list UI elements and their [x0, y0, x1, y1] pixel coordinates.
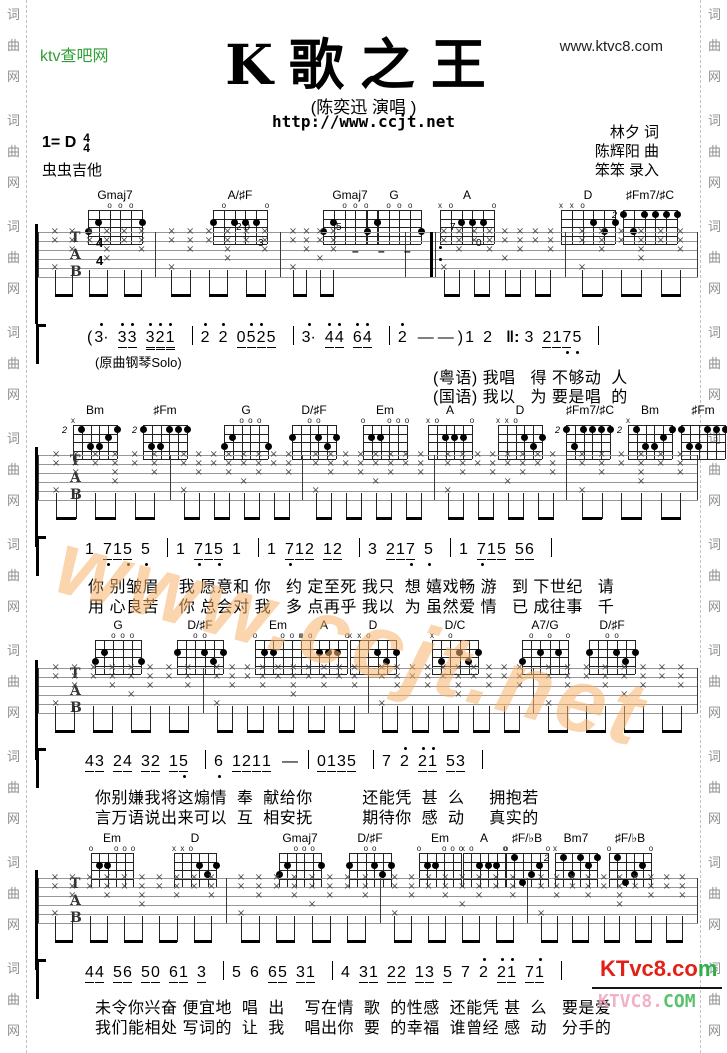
finger-dot	[334, 649, 341, 656]
strum-x-mark: ×	[190, 882, 198, 892]
jianpu-note: 3	[95, 752, 104, 772]
note-beam	[376, 517, 392, 520]
strum-x-mark: ×	[470, 236, 478, 246]
finger-dot	[456, 649, 463, 656]
muted-string-mark: x	[551, 844, 559, 853]
open-string-mark: o	[314, 416, 322, 425]
jianpu-note: 5	[141, 963, 150, 983]
barline	[226, 878, 227, 923]
jianpu-note: 1	[487, 540, 496, 560]
strum-x-mark: ×	[316, 254, 324, 264]
open-string-mark: o	[603, 631, 611, 640]
notation-bracket	[36, 324, 39, 364]
strum-x-mark: ×	[343, 882, 351, 892]
tab-staff: TAB×××××××××××××××××××××××××××××××××××××…	[38, 668, 698, 714]
fret-position-label: 2	[62, 425, 67, 435]
note-stem	[217, 706, 218, 732]
open-string-mark: o	[251, 631, 259, 640]
fret-position-label: 2	[132, 425, 137, 435]
finger-dot	[586, 649, 593, 656]
strum-x-mark: ×	[85, 236, 93, 246]
muted-string-mark: x	[170, 844, 178, 853]
strum-x-mark: ×	[584, 891, 592, 901]
jianpu-note: 7	[285, 540, 294, 560]
finger-dot	[632, 649, 639, 656]
fret-line	[349, 862, 391, 863]
note-stem	[538, 493, 539, 519]
note-stem	[265, 270, 266, 296]
rail-char-right: 网	[708, 490, 721, 509]
octave-dot-above	[356, 323, 359, 326]
strum-x-mark: ×	[501, 236, 509, 246]
note-stem	[90, 916, 91, 942]
strum-x-mark: ×	[89, 672, 97, 682]
rail-char-right: 网	[708, 1020, 721, 1039]
note-stem	[523, 493, 524, 519]
note-beam	[55, 940, 73, 943]
barline	[368, 668, 369, 713]
tab-staff: TAB×××××××××××××××××××××××××××××××××××××…	[38, 878, 698, 924]
fret-position-label: 2	[617, 425, 622, 435]
chord-name: D/♯F	[292, 403, 336, 417]
strum-x-mark: ×	[316, 236, 324, 246]
muted-string-mark: x	[436, 201, 444, 210]
finger-dot	[289, 434, 296, 441]
rail-char-right: 词	[708, 852, 721, 871]
note-stem	[496, 916, 497, 942]
strum-x-mark: ×	[676, 245, 684, 255]
finger-dot	[590, 219, 597, 226]
note-stem	[666, 916, 667, 942]
notation-barline	[551, 538, 552, 557]
note-beam	[535, 294, 551, 297]
jianpu-note: 2	[483, 328, 492, 347]
octave-dot-above	[422, 747, 425, 750]
note-beam	[621, 294, 642, 297]
notation-symbol: )	[458, 329, 463, 347]
fret-line	[428, 442, 472, 443]
fret-line	[628, 451, 672, 452]
repeat-bar-thick	[430, 232, 433, 277]
octave-dot-above	[404, 747, 407, 750]
jianpu-note: 1	[166, 328, 175, 348]
jianpu-note: 4	[335, 328, 344, 348]
note-stem	[244, 493, 245, 519]
finger-dot	[652, 211, 659, 218]
rail-char-left: 词	[7, 216, 20, 235]
open-string-mark: o	[385, 416, 393, 425]
fret-line	[177, 649, 223, 650]
muted-string-mark: x	[494, 416, 502, 425]
strum-x-mark: ×	[390, 882, 398, 892]
note-beam	[55, 730, 75, 733]
strum-x-mark: ×	[361, 891, 369, 901]
note-stem	[131, 706, 132, 732]
octave-dot-below	[410, 563, 413, 566]
finger-dot	[166, 426, 173, 433]
finger-dot	[175, 426, 182, 433]
strum-x-mark: ×	[155, 882, 163, 892]
fret-line	[88, 210, 142, 211]
finger-dot	[374, 649, 381, 656]
strum-x-mark: ×	[424, 681, 432, 691]
octave-dot-above	[260, 323, 263, 326]
muted-string-mark: x	[69, 416, 77, 425]
fret-line	[279, 870, 321, 871]
finger-dot	[213, 862, 220, 869]
notation-line: 4324321561211—0135722153	[85, 750, 491, 772]
fret-line	[506, 870, 548, 871]
chord-name: A	[428, 403, 472, 417]
jianpu-note: 6	[250, 963, 259, 982]
finger-dot	[261, 649, 268, 656]
open-string-mark: o	[246, 416, 254, 425]
barline	[527, 878, 528, 923]
note-stem	[572, 916, 573, 942]
jianpu-note: 2	[201, 328, 210, 347]
note-stem	[428, 916, 429, 942]
note-stem	[443, 706, 444, 732]
note-stem	[391, 493, 392, 519]
rail-char-right: 网	[708, 172, 721, 191]
finger-dot	[388, 862, 395, 869]
repeat-bar-thin	[435, 232, 436, 277]
strum-x-mark: ×	[91, 459, 99, 469]
jianpu-note: 2	[479, 963, 488, 982]
strum-x-mark: ×	[342, 459, 350, 469]
dash-note: —	[438, 329, 454, 347]
note-stem	[331, 493, 332, 519]
finger-dot	[607, 426, 614, 433]
open-string-mark: o	[579, 201, 587, 210]
jianpu-note: 5	[141, 540, 150, 559]
chord-name: A	[440, 188, 494, 202]
note-beam	[135, 517, 156, 520]
octave-dot-above	[483, 958, 486, 961]
muted-string-mark: x	[503, 416, 511, 425]
note-beam	[406, 517, 422, 520]
note-stem	[553, 493, 554, 519]
fret-line	[143, 434, 187, 435]
jianpu-note: 7	[525, 963, 534, 983]
credit-line: 陈辉阳 曲	[595, 142, 659, 161]
open-string-mark: o	[647, 844, 655, 853]
note-stem	[320, 270, 321, 296]
note-beam	[320, 294, 335, 297]
note-stem	[112, 706, 113, 732]
open-string-mark: o	[121, 844, 129, 853]
open-string-mark: o	[306, 631, 314, 640]
chord-name: ♯Fm7/♯C	[623, 188, 677, 202]
fret-line	[589, 666, 635, 667]
octave-dot-above	[308, 323, 311, 326]
open-string-mark: o	[446, 631, 454, 640]
strum-x-mark: ×	[120, 882, 128, 892]
chord-name: Bm	[73, 403, 117, 417]
strum-x-mark: ×	[327, 468, 335, 478]
fret-line	[292, 425, 336, 426]
chord-name: Em	[255, 618, 301, 632]
strum-x-mark: ×	[290, 891, 298, 901]
notation-barline	[258, 538, 259, 557]
barline	[203, 668, 204, 713]
octave-dot-above	[501, 958, 504, 961]
open-string-mark: o	[87, 844, 95, 853]
fret-line	[91, 870, 133, 871]
tab-staff: TAB442 03570–––×××××××××××××××××××××××××…	[38, 232, 698, 278]
strum-x-mark: ×	[677, 681, 685, 691]
note-stem	[662, 706, 663, 732]
barline	[38, 232, 39, 277]
staff-line	[38, 268, 698, 269]
note-beam	[244, 517, 260, 520]
fret-line	[213, 210, 267, 211]
note-stem	[541, 916, 542, 942]
octave-dot-above	[432, 747, 435, 750]
jianpu-note: 0	[317, 752, 326, 772]
chord-name: ♯F/♭B	[609, 831, 651, 845]
fret-line	[349, 853, 391, 854]
note-stem	[55, 706, 56, 732]
strum-x-mark: ×	[516, 245, 524, 255]
notation-barline	[482, 750, 483, 769]
finger-dot	[580, 426, 587, 433]
jianpu-note: 6	[268, 963, 277, 983]
finger-dot	[633, 426, 640, 433]
jianpu-note: 3	[524, 328, 533, 347]
strum-x-mark: ×	[165, 672, 173, 682]
chord-name: Gmaj7	[88, 188, 142, 202]
jianpu-note: 5	[123, 540, 132, 560]
strum-x-mark: ×	[647, 891, 655, 901]
rail-char-right: 曲	[708, 883, 721, 902]
rail-char-left: 词	[7, 640, 20, 659]
strum-x-mark: ×	[504, 477, 512, 487]
note-stem	[199, 493, 200, 519]
note-stem	[462, 916, 463, 942]
fret-line	[555, 870, 597, 871]
jianpu-note: 6	[353, 328, 362, 348]
note-stem	[428, 706, 429, 732]
fret-line	[561, 227, 615, 228]
note-stem	[588, 916, 589, 942]
strum-x-mark: ×	[228, 681, 236, 691]
note-stem	[448, 493, 449, 519]
chord-diagram: ♯Fm2	[681, 403, 725, 461]
rail-char-right: 网	[708, 384, 721, 403]
strum-x-mark: ×	[678, 891, 686, 901]
strum-x-mark: ×	[531, 236, 539, 246]
strum-x-mark: ×	[51, 882, 59, 892]
barline	[697, 455, 698, 500]
strum-x-mark: ×	[320, 681, 328, 691]
jianpu-note: 5	[443, 963, 452, 983]
repeat-dot	[439, 246, 442, 249]
note-beam	[462, 940, 480, 943]
note-beam	[661, 294, 682, 297]
open-string-mark: o	[449, 844, 457, 853]
fret-line	[350, 649, 396, 650]
strum-x-mark: ×	[240, 459, 248, 469]
note-beam	[478, 517, 494, 520]
note-stem	[513, 916, 514, 942]
jianpu-note: 4	[363, 328, 372, 348]
strum-x-mark: ×	[417, 468, 425, 478]
jianpu-note: 2	[387, 963, 396, 983]
chord-diagram: Bmx2	[628, 403, 672, 461]
jianpu-note: 6	[214, 752, 223, 771]
fret-line	[301, 640, 347, 641]
rail-char-right: 网	[708, 808, 721, 827]
notation-bracket	[36, 959, 39, 999]
strum-x-mark: ×	[620, 690, 628, 700]
credit-line: 林夕 词	[595, 123, 659, 142]
jianpu-note: 5	[424, 540, 433, 559]
note-stem	[184, 493, 185, 519]
chord-grid: 2	[628, 425, 672, 459]
open-string-mark: o	[263, 201, 271, 210]
note-beam	[604, 940, 621, 943]
fret-line	[428, 425, 472, 426]
finger-dot	[704, 426, 711, 433]
rail-char-right: 词	[708, 746, 721, 765]
solo-annotation: (原曲钢琴Solo)	[95, 352, 182, 371]
left-dashed-border	[26, 0, 27, 1053]
note-stem	[643, 706, 644, 732]
note-stem	[93, 706, 94, 732]
chord-name: Bm	[628, 403, 672, 417]
strum-x-mark: ×	[357, 468, 365, 478]
note-stem	[211, 916, 212, 942]
strum-x-mark: ×	[237, 882, 245, 892]
note-stem	[72, 916, 73, 942]
octave-dot-above	[204, 323, 207, 326]
finger-dot	[138, 658, 145, 665]
strum-x-mark: ×	[108, 681, 116, 691]
finger-dot	[104, 862, 111, 869]
open-string-mark: o	[605, 844, 613, 853]
strum-x-mark: ×	[225, 468, 233, 478]
notation-line: 171551715117121232175171556	[85, 538, 560, 560]
note-beam	[504, 730, 520, 733]
note-stem	[324, 706, 325, 732]
fret-line	[628, 442, 672, 443]
jianpu-note: 1	[415, 963, 424, 983]
note-beam	[131, 730, 151, 733]
rail-char-right: 词	[708, 534, 721, 553]
jianpu-note: 3	[337, 752, 346, 772]
note-stem	[567, 706, 568, 732]
barline	[38, 878, 39, 923]
rail-char-right: 曲	[708, 565, 721, 584]
note-beam	[124, 294, 142, 297]
octave-dot-below	[218, 563, 221, 566]
strum-x-mark: ×	[459, 468, 467, 478]
jianpu-note: 3	[118, 328, 127, 348]
note-stem	[651, 916, 652, 942]
fret-line	[432, 649, 478, 650]
octave-dot-above	[366, 323, 369, 326]
fret-line	[177, 657, 223, 658]
note-stem	[188, 706, 189, 732]
rail-char-right: 曲	[708, 777, 721, 796]
fret-line	[367, 210, 421, 211]
chord-name: A7/G	[522, 618, 568, 632]
repeat-sign: ‖:	[506, 329, 519, 347]
finger-dot	[641, 211, 648, 218]
strum-x-mark: ×	[501, 254, 509, 264]
finger-dot	[318, 862, 325, 869]
sheet-page: 词词曲曲网网词词曲曲网网词词曲曲网网词词曲曲网网词词曲曲网网词词曲曲网网词词曲曲…	[0, 0, 727, 1053]
chord-name: D	[350, 618, 396, 632]
fret-line	[363, 442, 407, 443]
strum-x-mark: ×	[475, 891, 483, 901]
fret-position-label: 2	[555, 425, 560, 435]
strum-x-mark: ×	[454, 690, 462, 700]
rail-char-left: 曲	[7, 989, 20, 1008]
strum-x-mark: ×	[131, 459, 139, 469]
finger-dot	[695, 443, 702, 450]
strum-x-mark: ×	[439, 672, 447, 682]
finger-dot	[346, 862, 353, 869]
finger-dot	[95, 219, 102, 226]
strum-x-mark: ×	[243, 672, 251, 682]
open-string-mark: o	[512, 416, 520, 425]
note-stem	[289, 493, 290, 519]
finger-dot	[368, 434, 375, 441]
strum-x-mark: ×	[489, 468, 497, 478]
note-beam	[246, 294, 266, 297]
notation-bracket-nub	[36, 959, 46, 962]
jianpu-note: 3	[296, 963, 305, 983]
octave-dot-below	[218, 775, 221, 778]
jianpu-note: 5	[214, 540, 223, 560]
note-stem	[76, 493, 77, 519]
note-stem	[354, 706, 355, 732]
finger-dot	[660, 434, 667, 441]
octave-dot-below	[127, 563, 130, 566]
note-stem	[339, 706, 340, 732]
strum-x-mark: ×	[582, 672, 590, 682]
note-stem	[550, 270, 551, 296]
finger-dot	[78, 426, 85, 433]
note-stem	[107, 916, 108, 942]
strum-x-mark: ×	[458, 882, 466, 892]
note-stem	[458, 706, 459, 732]
jianpu-note: 1	[169, 752, 178, 772]
note-beam	[93, 730, 113, 733]
rest-dash: –	[378, 244, 385, 258]
muted-string-mark: x	[355, 631, 363, 640]
rail-char-right: 曲	[708, 247, 721, 266]
dash-note: —	[282, 753, 298, 771]
barline	[533, 668, 534, 713]
octave-dot-above	[222, 323, 225, 326]
fret-line	[561, 219, 615, 220]
fret-line	[589, 657, 635, 658]
note-stem	[293, 706, 294, 732]
open-string-mark: o	[220, 201, 228, 210]
note-stem	[680, 270, 681, 296]
notation-barline	[308, 750, 309, 769]
octave-dot-above	[159, 323, 162, 326]
finger-dot	[253, 219, 260, 226]
note-stem	[508, 493, 509, 519]
barline	[380, 878, 381, 923]
strum-x-mark: ×	[393, 681, 401, 691]
note-stem	[55, 270, 56, 296]
open-string-mark: o	[467, 844, 475, 853]
